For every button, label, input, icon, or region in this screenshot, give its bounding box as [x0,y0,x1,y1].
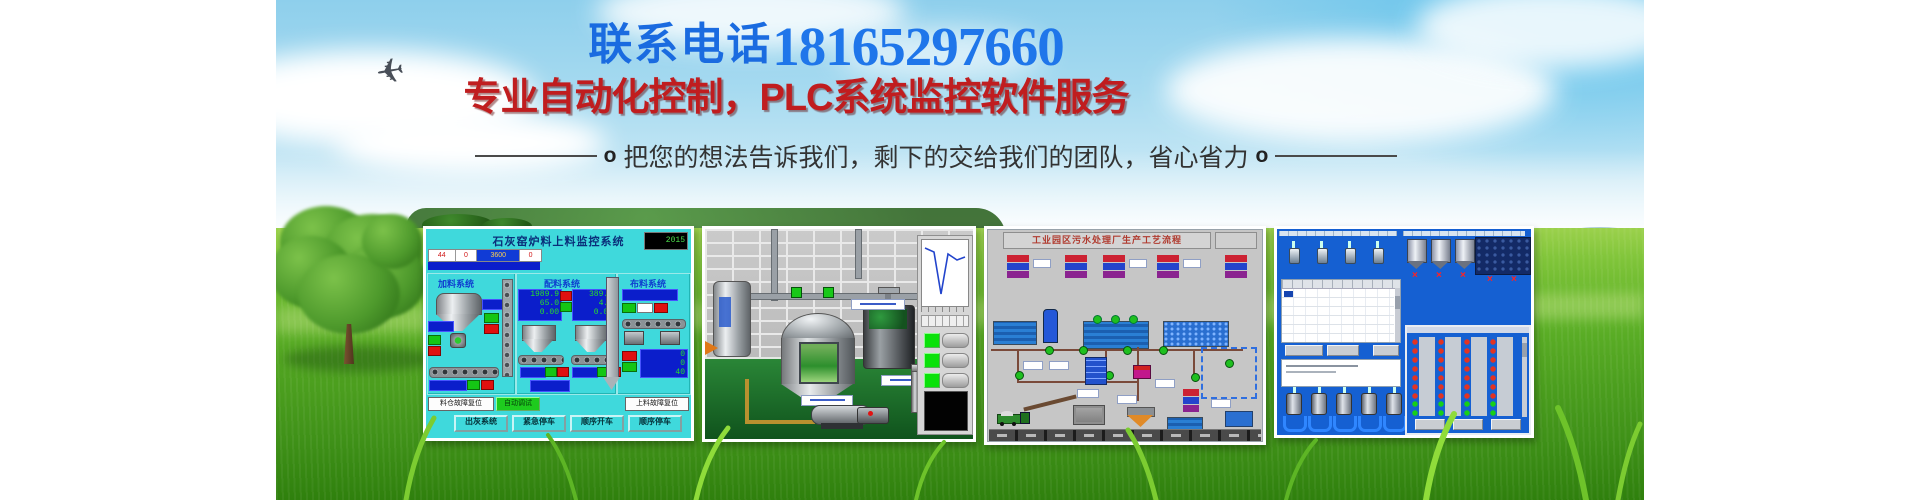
valve-symbol [1317,241,1326,263]
valve-cross-icon: × [1487,275,1493,285]
tagline-left-rule [475,155,597,157]
phone-label: 联系电话 [588,20,772,69]
chart-axis-ticks [921,307,967,312]
distribution-car [624,331,644,345]
clarifier-pool [1163,321,1229,347]
stop-chip [481,380,494,390]
table-button [1327,345,1359,356]
grass-blades [276,390,1644,500]
distribution-car [660,331,680,345]
slider-slat [942,373,969,388]
level-value: 0 [641,359,685,368]
tagline-text: 把您的想法告诉我们，剩下的交给我们的团队，省心省力 [623,138,1248,174]
magenta-instrument [1133,365,1151,379]
chart-toolbar [921,315,969,327]
tagline-left-mark: o [604,144,617,168]
status-chip [622,289,678,301]
valve-dot [1079,346,1088,355]
valve-cross-icon: × [1460,271,1466,281]
pool-inlet [993,321,1037,345]
silo-funnel [1431,261,1449,269]
instrument-cluster [1157,255,1179,279]
chain-conveyor [622,319,686,329]
strip-cell: 3600 [477,250,520,261]
valve-dot [1225,359,1234,368]
silo [575,325,609,341]
blue-tank [1043,309,1058,343]
weigh-value: 0.00 [519,308,559,317]
trend-curve [922,240,968,306]
mixer-window-green [799,342,839,384]
stop-chip [654,303,668,313]
valve-indicator [791,287,802,298]
slider-slat [942,353,969,368]
trend-chart [921,239,969,307]
tank-label-strip [719,297,731,327]
bucket-elevator [502,279,513,377]
run-chip [484,313,499,323]
rotary-valve [450,333,466,348]
dosing-panel [1085,357,1107,385]
instrument-cluster [1225,255,1247,279]
white-chip [637,303,653,313]
instrument-cluster [1007,255,1029,279]
diagram-title: 工业园区污水处理厂生产工艺流程 [1003,232,1211,249]
sprinkler-icon [1111,315,1120,324]
blue-bar [428,262,540,270]
tagline-right-rule [1275,155,1397,157]
discharge-chute [606,277,619,379]
headline: 专业自动化控制，PLC系统监控软件服务 [446,66,1146,121]
page-canvas: ✈ 联系电话18165297660 专业自动化控制，PLC系统监控软件服务 [0,0,1920,500]
tag-chip [1033,259,1051,268]
chain-conveyor [429,367,499,378]
hopper [436,293,482,315]
tagline-row: o 把您的想法告诉我们，剩下的交给我们的团队，省心省力 o [446,138,1426,174]
status-chip [520,367,546,378]
valve-cross-icon: × [1511,275,1517,285]
tag-chip [1129,259,1147,268]
level-value: 40 [641,368,685,377]
log-panel [1281,359,1401,387]
weigh-value: 65.0 [519,299,559,308]
tag-label [851,299,905,310]
silo [1455,239,1475,263]
data-table-window [1281,279,1401,343]
weigh-value: 1989.9 [519,290,559,299]
instrument-cluster [1103,255,1125,279]
tag-chip [1155,379,1175,388]
valve-symbol [1289,241,1298,263]
dark-tank-green-top [869,309,907,329]
table-button [1373,345,1399,356]
valve-cross-icon: × [1436,271,1442,281]
valve-dot [1191,373,1200,382]
tree-image [276,206,435,376]
chain-conveyor [518,355,564,365]
tank-valve-handle [878,287,900,294]
valve-cross-icon: × [1412,271,1418,281]
silo-funnel [1455,261,1473,269]
run-chip [622,362,637,372]
tagline-right-mark: o [1256,144,1269,168]
valve-dot [1045,346,1054,355]
green-indicator-button [924,373,940,388]
selected-cell [1284,291,1293,297]
green-indicator-button [924,353,940,368]
window-titlebar [1407,327,1529,333]
valve-symbol [1345,241,1354,263]
valve-dot [1159,346,1168,355]
mini-titlebar [1403,231,1525,236]
stop-chip [484,324,499,334]
instrument-cluster [1065,255,1087,279]
flow-arrow-icon [705,341,718,355]
strip-cell: 0 [456,250,478,261]
silo-funnel [1407,261,1425,269]
strip-cell: 0 [520,250,541,261]
tag-chip [1183,259,1201,268]
stop-chip [622,351,637,361]
table-button [1285,345,1323,356]
stop-chip [560,291,572,301]
photo-overlay-block [1475,237,1531,275]
stop-chip [428,346,441,356]
title-side-block [1215,232,1257,249]
value-strip: 44 0 3600 0 [428,249,542,262]
green-indicator-button [924,333,940,348]
weigh-panel-1: 1989.9 65.0 0.00 [518,289,562,321]
strip-cell: 44 [429,250,456,261]
stop-chip [557,367,569,377]
run-chip [622,303,636,313]
promo-banner: ✈ 联系电话18165297660 专业自动化控制，PLC系统监控软件服务 [276,0,1644,500]
pipe-vertical [771,229,778,301]
run-chip [545,367,557,377]
status-chip [428,321,454,332]
run-chip [467,380,480,390]
pipe-line [1017,381,1139,383]
sprinkler-icon [1129,315,1138,324]
status-chip [572,367,598,378]
run-chip [428,335,441,345]
valve-indicator [823,287,834,298]
table-grid [1282,289,1394,342]
silo [1431,239,1451,263]
level-value: 0 [641,350,685,359]
valve-dot [1123,346,1132,355]
silo [522,325,556,341]
section-label-feed: 加料系统 [438,277,474,290]
tag-chip [1049,361,1069,370]
slider-slat [942,333,969,348]
mixer-dome [781,313,855,341]
silo [1407,239,1427,263]
level-panel: 0 0 40 [640,349,688,378]
sprinkler-icon [1093,315,1102,324]
tag-chip [1023,361,1043,370]
table-header [1282,280,1400,289]
table-scrollbar [1395,288,1400,342]
run-chip [560,302,572,312]
pipe-vertical [855,229,862,279]
mini-titlebar [1279,231,1397,236]
aeration-tank [1083,321,1149,349]
valve-symbol [1373,241,1382,263]
clock-display: 2015 [644,232,688,250]
valve-dot [1015,371,1024,380]
